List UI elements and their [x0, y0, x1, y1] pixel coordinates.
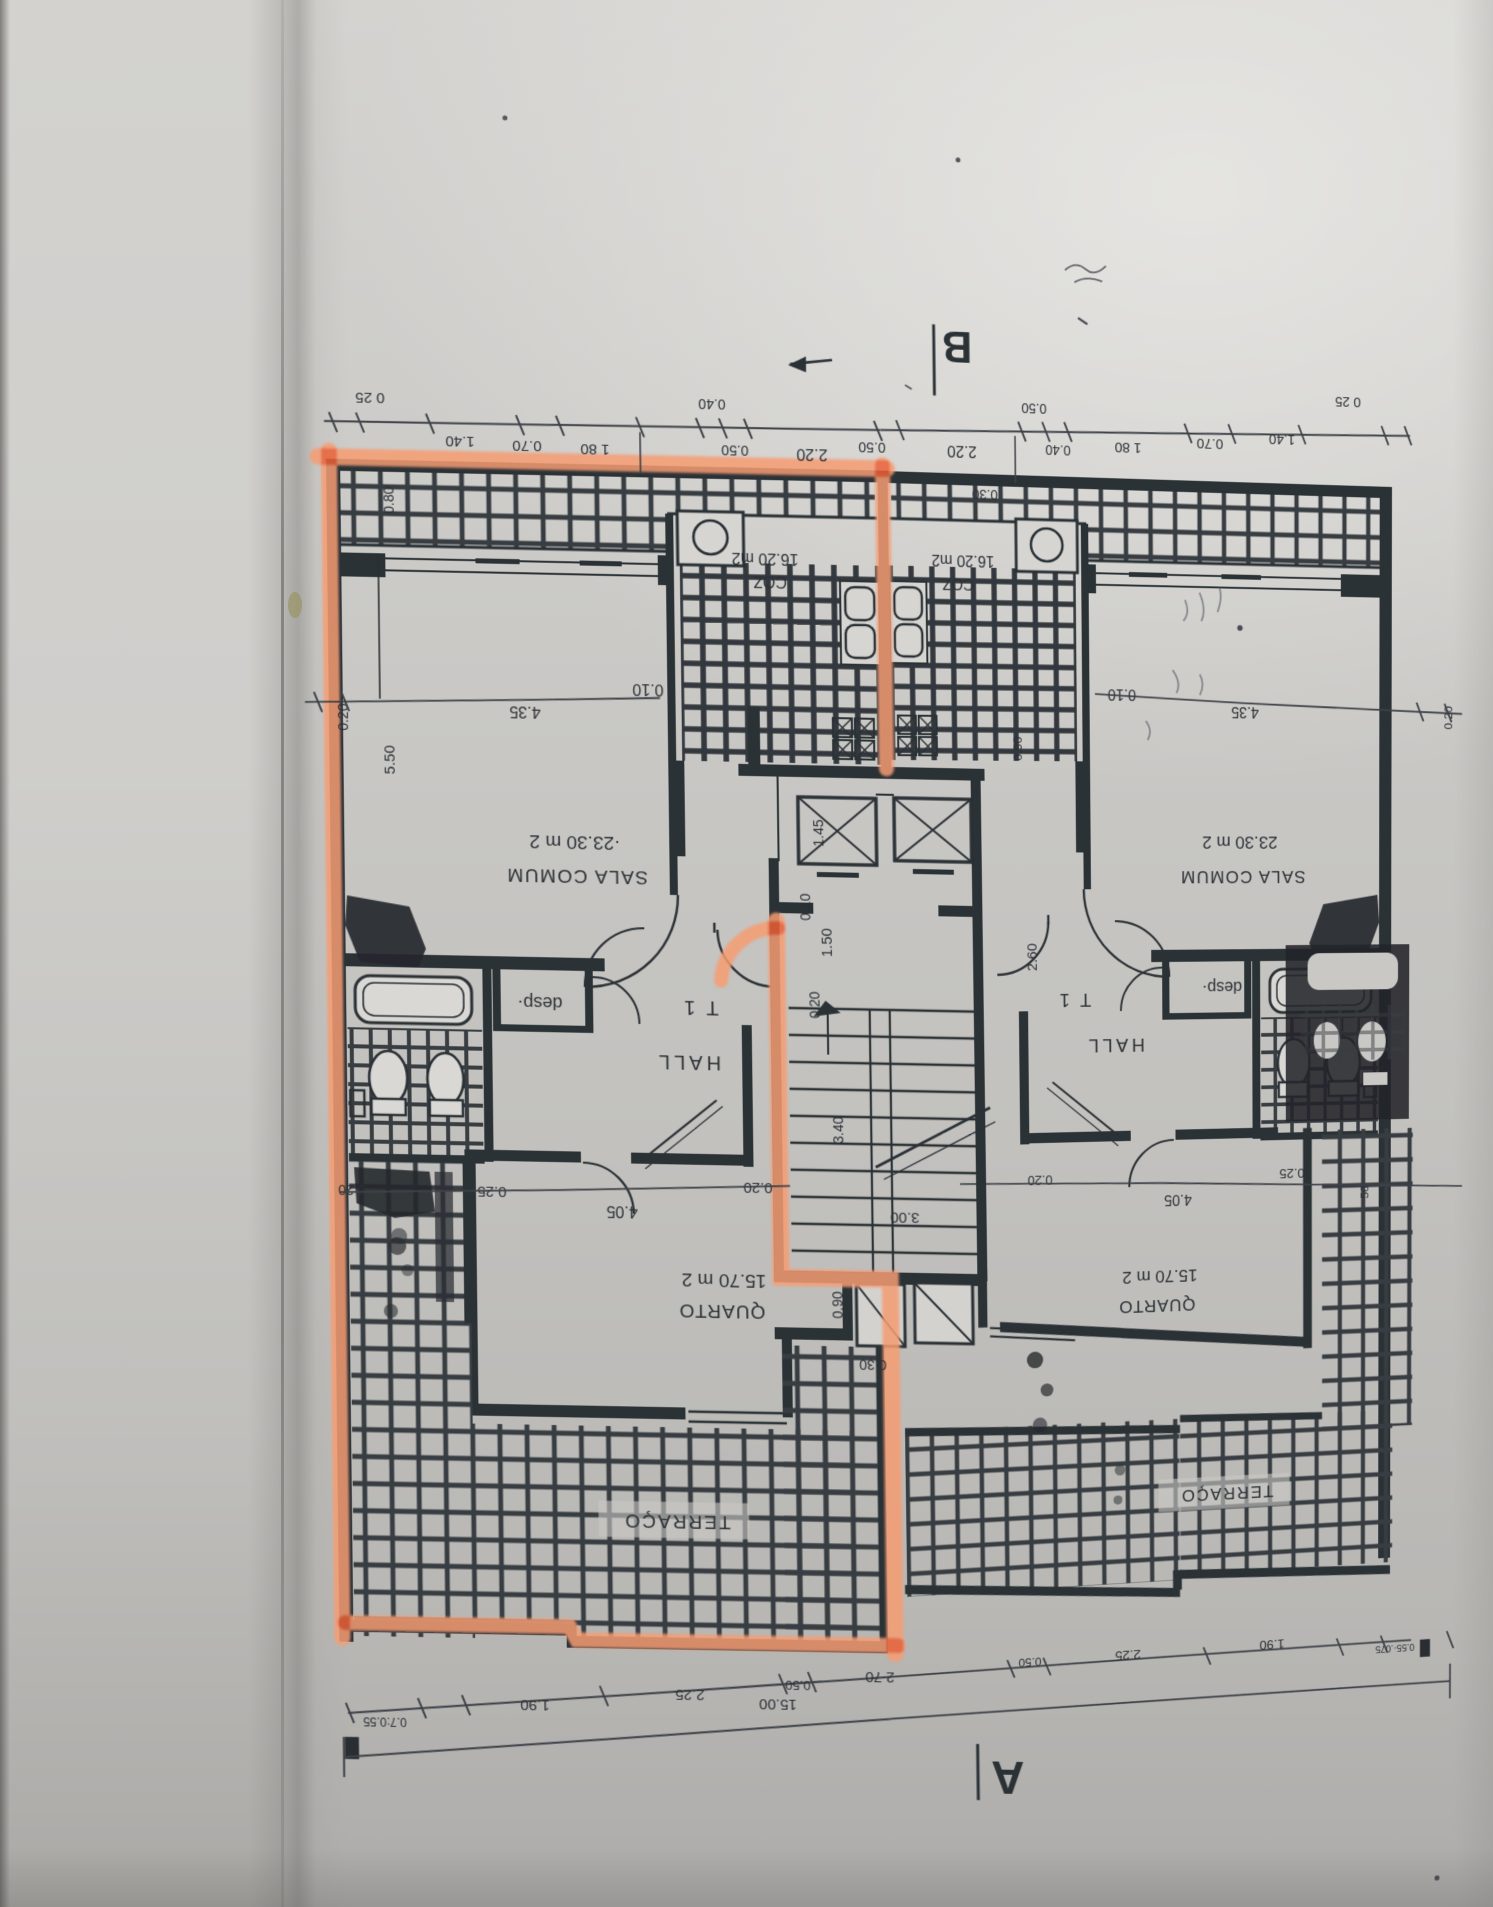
svg-text:0 25: 0 25: [355, 388, 384, 406]
svg-text:1 80: 1 80: [580, 440, 609, 458]
svg-text:4.35: 4.35: [509, 702, 541, 720]
svg-text:0.30: 0.30: [859, 1357, 887, 1374]
svg-text:1.45: 1.45: [810, 819, 826, 847]
svg-text:0.10: 0.10: [797, 893, 813, 921]
svg-text:0.10: 0.10: [632, 680, 663, 698]
svg-text:A: A: [991, 1752, 1025, 1805]
svg-text:SALA COMUM: SALA COMUM: [506, 864, 648, 888]
svg-text:0.40: 0.40: [1045, 441, 1070, 457]
svg-text:5.50: 5.50: [382, 745, 399, 774]
svg-text:16.20 m2: 16.20 m2: [731, 549, 798, 567]
svg-text:0 25: 0 25: [1335, 393, 1361, 409]
svg-text:3.00: 3.00: [890, 1208, 919, 1226]
svg-text:0.70: 0.70: [512, 437, 541, 455]
svg-text:·23.30 m 2: ·23.30 m 2: [529, 830, 620, 853]
svg-text:0.50: 0.50: [1021, 399, 1047, 415]
svg-text:2.25: 2.25: [675, 1685, 705, 1703]
svg-text:0.90: 0.90: [830, 1291, 846, 1319]
svg-text:0.50: 0.50: [1018, 1655, 1041, 1669]
svg-text:0.80: 0.80: [381, 486, 397, 514]
svg-text:2.20: 2.20: [947, 442, 977, 461]
svg-text:1.90: 1.90: [520, 1696, 550, 1714]
svg-text:0.20: 0.20: [335, 703, 351, 731]
svg-text:0.50: 0.50: [721, 442, 749, 459]
svg-text:QUARTO: QUARTO: [678, 1299, 765, 1322]
svg-text:0.20: 0.20: [338, 1182, 366, 1199]
svg-text:15.00: 15.00: [759, 1695, 797, 1713]
svg-text:0.20: 0.20: [1442, 706, 1454, 730]
svg-text:0.50: 0.50: [785, 1677, 811, 1693]
svg-text:0.70: 0.70: [1197, 435, 1224, 451]
svg-text:0.7:0.55: 0.7:0.55: [363, 1714, 407, 1729]
svg-text:1.40: 1.40: [1269, 431, 1295, 447]
svg-text:B: B: [942, 322, 973, 372]
svg-text:0.20: 0.20: [807, 991, 823, 1019]
svg-text:4.05: 4.05: [606, 1202, 638, 1220]
svg-text:0.50: 0.50: [858, 439, 886, 456]
svg-text:2.20: 2.20: [796, 445, 827, 463]
svg-text:2 70: 2 70: [865, 1668, 895, 1686]
svg-text:1.50: 1.50: [819, 928, 836, 957]
svg-text:3.40: 3.40: [830, 1116, 846, 1144]
svg-text:HALL: HALL: [655, 1050, 721, 1073]
svg-text:COZ: COZ: [753, 572, 787, 590]
svg-text:TERRAÇO: TERRAÇO: [623, 1509, 731, 1532]
svg-text:1 80: 1 80: [1114, 439, 1141, 455]
svg-text:desp·: desp·: [517, 992, 562, 1013]
svg-text:0.40: 0.40: [698, 396, 726, 413]
svg-text:1.40: 1.40: [445, 432, 474, 450]
svg-text:T 1: T 1: [681, 996, 719, 1019]
svg-text:15.70 m 2: 15.70 m 2: [681, 1269, 766, 1292]
